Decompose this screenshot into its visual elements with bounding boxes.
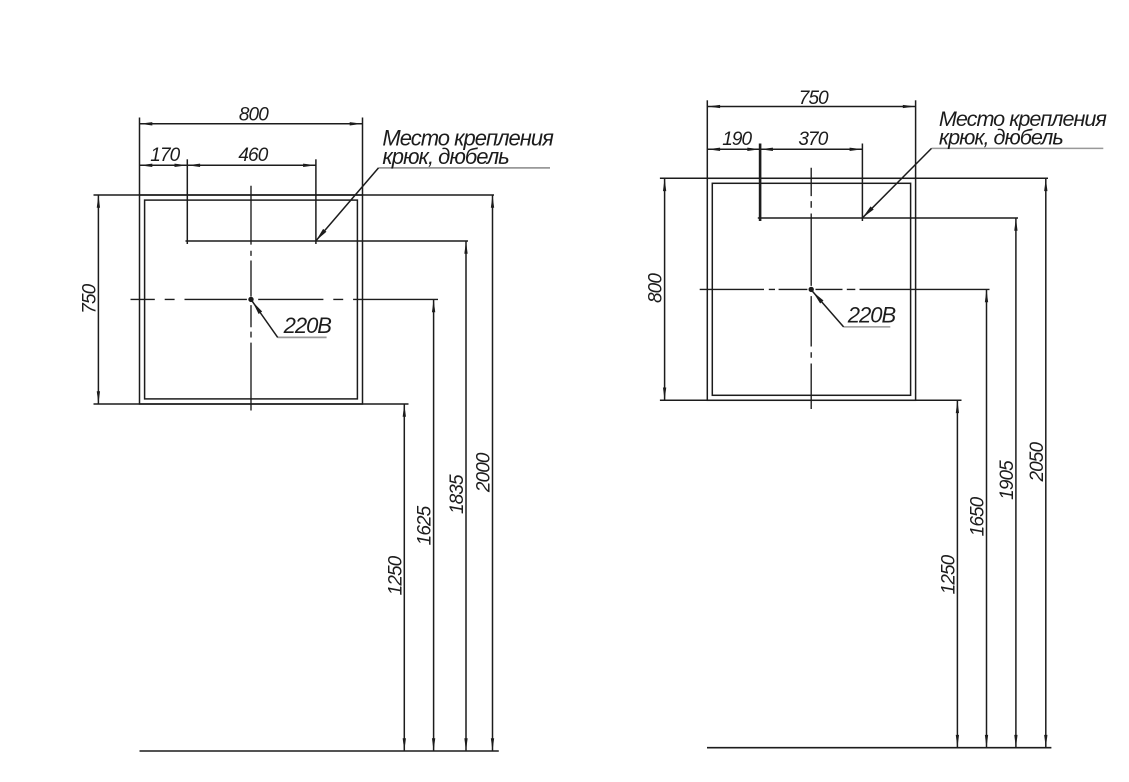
svg-text:1905: 1905 xyxy=(997,460,1018,500)
svg-text:220В: 220В xyxy=(847,303,896,328)
svg-text:190: 190 xyxy=(722,129,752,150)
svg-text:750: 750 xyxy=(799,88,829,109)
svg-text:крюк, дюбель: крюк, дюбель xyxy=(382,144,509,169)
svg-text:2050: 2050 xyxy=(1027,442,1048,483)
svg-text:2000: 2000 xyxy=(474,452,495,493)
svg-text:1650: 1650 xyxy=(968,496,989,536)
svg-text:1250: 1250 xyxy=(385,555,406,595)
svg-text:1625: 1625 xyxy=(415,505,436,545)
svg-text:370: 370 xyxy=(798,129,828,150)
svg-text:крюк, дюбель: крюк, дюбель xyxy=(939,124,1063,149)
svg-text:800: 800 xyxy=(239,104,269,125)
svg-text:1835: 1835 xyxy=(447,474,468,514)
svg-text:220В: 220В xyxy=(283,313,332,338)
svg-text:170: 170 xyxy=(150,145,180,166)
svg-text:460: 460 xyxy=(238,145,268,166)
svg-text:1250: 1250 xyxy=(938,554,959,594)
svg-text:800: 800 xyxy=(646,273,667,303)
svg-text:750: 750 xyxy=(79,283,100,313)
